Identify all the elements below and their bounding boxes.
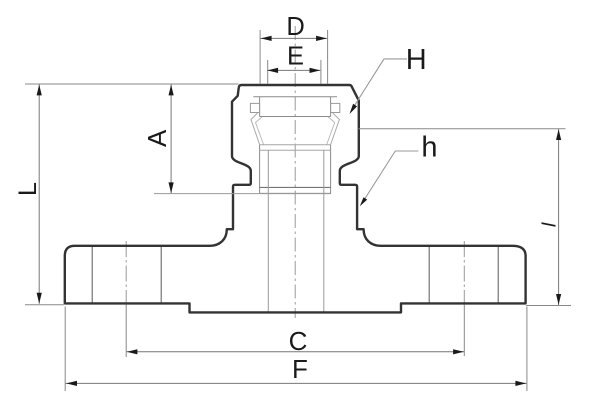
svg-text:F: F: [292, 354, 308, 384]
svg-text:h: h: [421, 131, 437, 163]
svg-text:D: D: [286, 13, 304, 41]
svg-text:l: l: [539, 222, 561, 227]
svg-text:E: E: [287, 42, 304, 70]
svg-text:C: C: [289, 326, 308, 356]
svg-text:A: A: [142, 129, 172, 147]
svg-text:H: H: [406, 44, 427, 76]
svg-text:L: L: [14, 182, 42, 196]
